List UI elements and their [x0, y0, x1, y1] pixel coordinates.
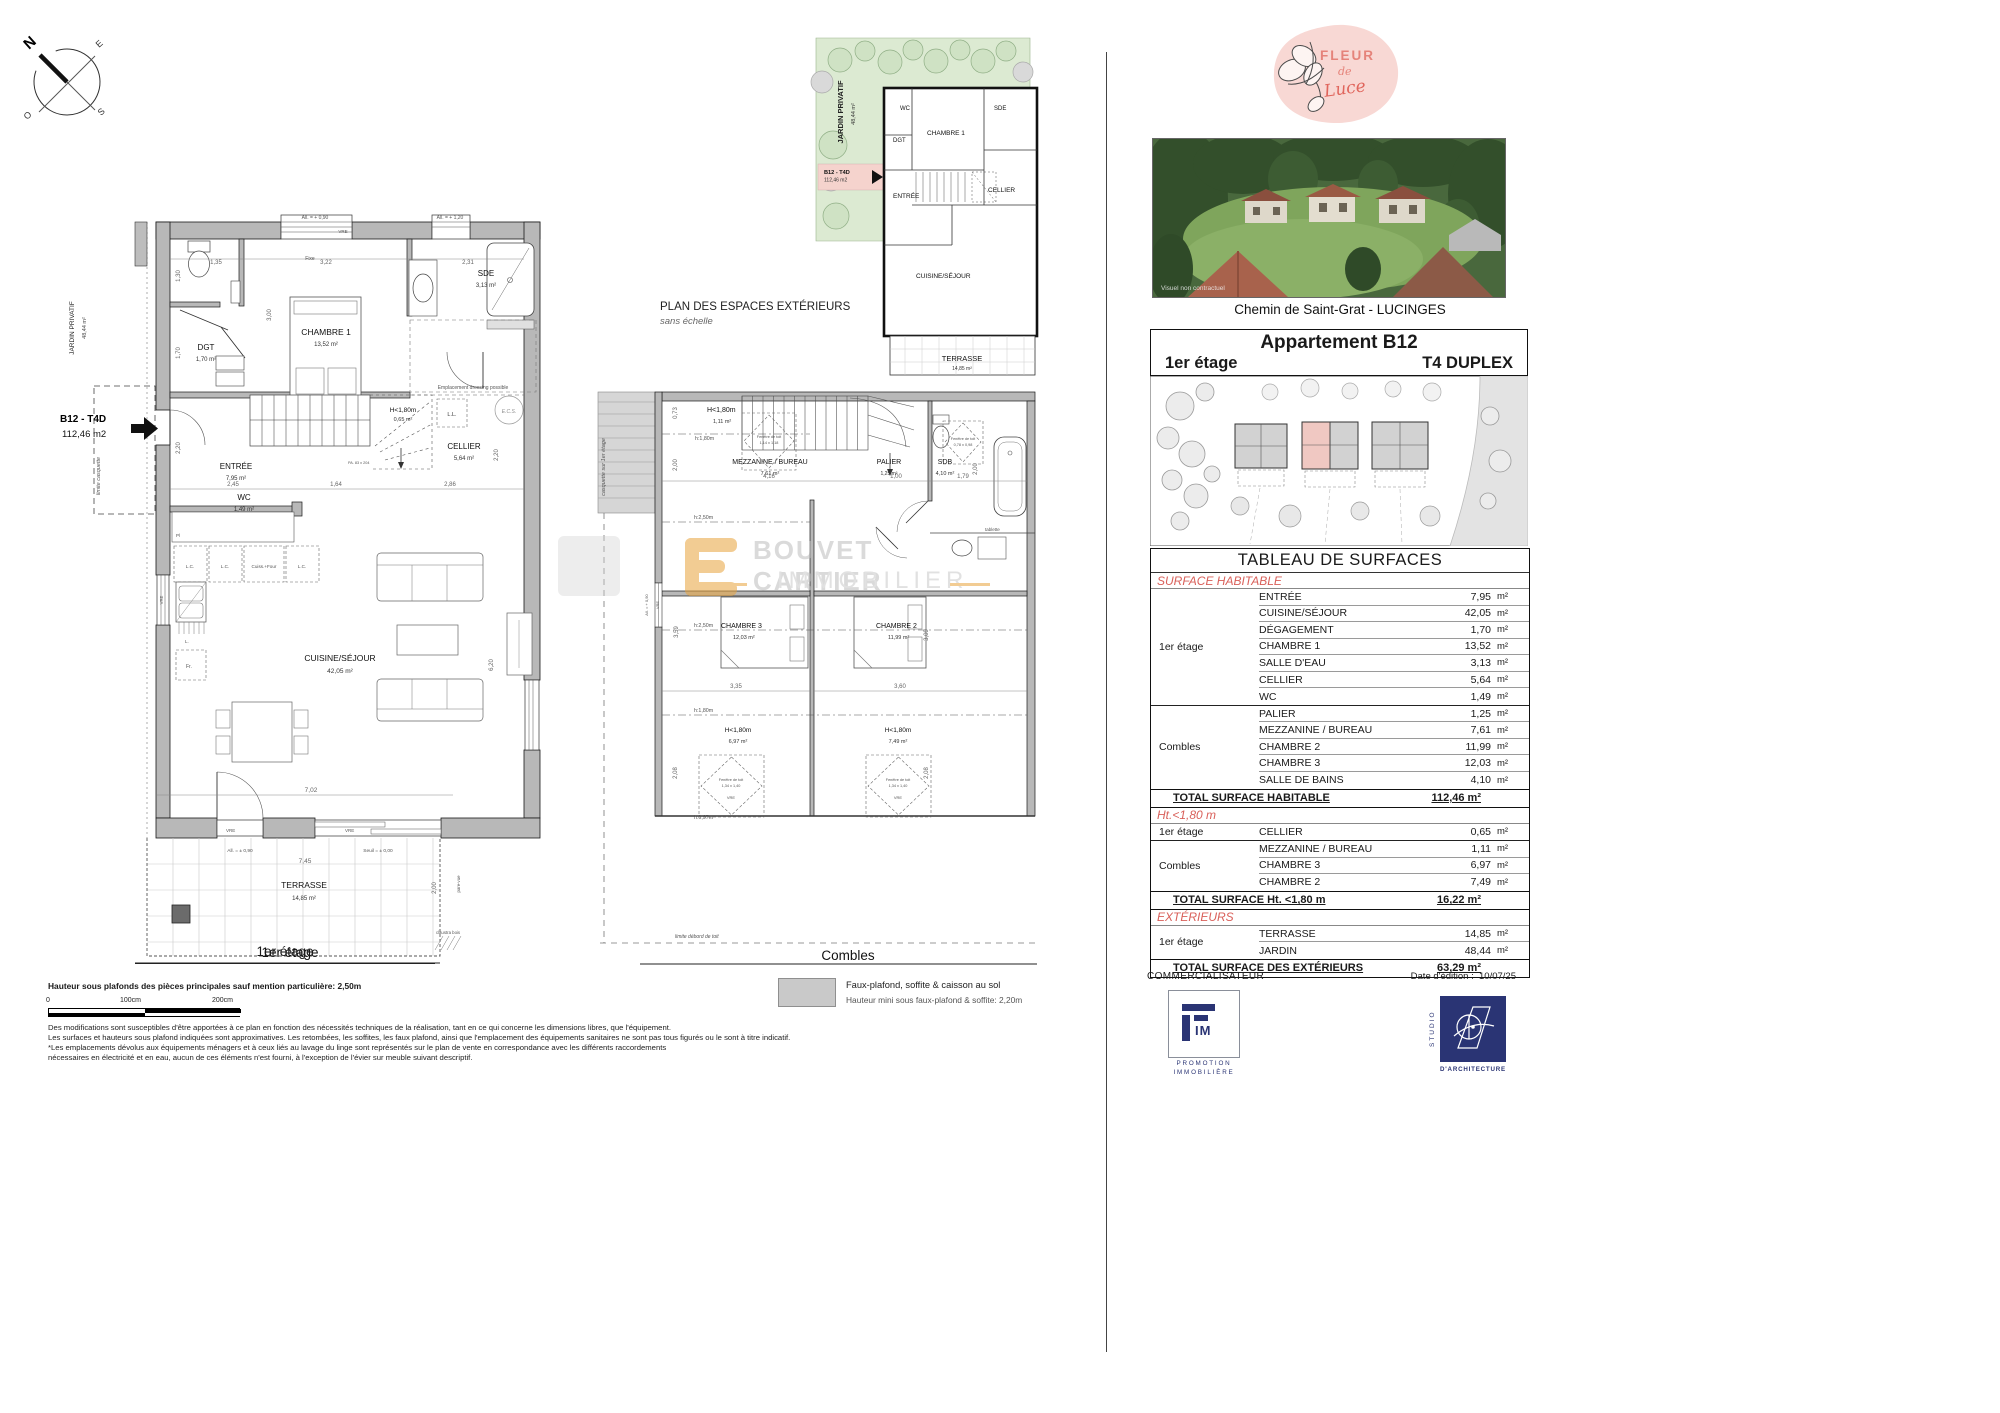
- apartment-floor: 1er étage: [1165, 354, 1237, 373]
- ceiling-height-note: Hauteur sous plafonds des pièces princip…: [48, 981, 361, 991]
- commercialisateur-label: COMMERCIALISATEUR: [1147, 971, 1264, 982]
- ext-terrasse: TERRASSE: [942, 354, 982, 363]
- row-unit: m²: [1491, 591, 1529, 602]
- plan-exterieurs: B12 - T4D 112,46 m2 WC CH: [650, 20, 1045, 385]
- dim: 2,20: [494, 449, 500, 461]
- dim: 6,20: [489, 659, 495, 671]
- disclaimer-line1: Des modifications sont susceptibles d'êt…: [48, 1023, 938, 1033]
- dim: 3,59: [674, 626, 680, 638]
- row-room: WC: [1259, 691, 1415, 703]
- row-room: SALLE D'EAU: [1259, 657, 1415, 669]
- unit-marker-code: B12 - T4D: [60, 414, 106, 425]
- ann-fr: Fr.: [186, 664, 192, 670]
- total-label: TOTAL SURFACE HABITABLE: [1173, 792, 1330, 804]
- panel-divider: [1106, 52, 1107, 1352]
- pc-ft4: Fenêtre de toit: [886, 778, 911, 782]
- table-row: DÉGAGEMENT1,70m²: [1259, 622, 1529, 639]
- ann-door-spec: PA. 83 x 204: [348, 461, 369, 465]
- disclaimer-line3: *Les emplacements dévolus aux équipement…: [48, 1043, 938, 1053]
- dim: 2,00: [432, 882, 438, 894]
- ext-sde: SDE: [994, 106, 1006, 112]
- row-unit: m²: [1491, 725, 1529, 736]
- watermark-rule-left: [695, 583, 747, 586]
- room-cellier: CELLIER: [447, 442, 481, 451]
- row-value: 3,13: [1415, 657, 1491, 669]
- table-row: MEZZANINE / BUREAU1,11m²: [1259, 841, 1529, 858]
- dim: 3,00: [267, 309, 273, 321]
- pc-ft1: Fenêtre de toit: [757, 435, 782, 439]
- site-plan: [1150, 376, 1528, 546]
- fim-logo: IM: [1168, 990, 1240, 1058]
- row-unit: m²: [1491, 708, 1529, 719]
- row-room: TERRASSE: [1259, 928, 1415, 940]
- ext-cuisine: CUISINE/SÉJOUR: [916, 271, 971, 280]
- ann-lc-1: L.C.: [186, 564, 194, 569]
- table-row: CUISINE/SÉJOUR42,05m²: [1259, 606, 1529, 623]
- ann-claustra: claustra bois: [436, 930, 460, 935]
- row-value: 4,10: [1415, 774, 1491, 786]
- dim: 3,22: [320, 260, 332, 266]
- ext-cellier: CELLIER: [988, 187, 1015, 194]
- row-unit: m²: [1491, 945, 1529, 956]
- row-unit: m²: [1491, 877, 1529, 888]
- total-ht180: TOTAL SURFACE Ht. <1,80 m 16,22 m²: [1151, 891, 1529, 910]
- disclaimer-line4: nécessaires en électricité et en eau, au…: [48, 1053, 938, 1063]
- pc-ft2-size: 0,78 x 0,98: [954, 443, 973, 447]
- scale-100: 100cm: [120, 997, 141, 1004]
- apartment-header: Appartement B12 1er étage T4 DUPLEX: [1150, 329, 1528, 376]
- row-room: CHAMBRE 2: [1259, 741, 1415, 753]
- row-value: 1,11: [1415, 843, 1491, 855]
- floor-label: Combles: [1151, 841, 1259, 891]
- unit-marker-area: 112,46 m2: [62, 429, 106, 440]
- row-unit: m²: [1491, 674, 1529, 685]
- row-room: MEZZANINE / BUREAU: [1259, 724, 1415, 736]
- row-unit: m²: [1491, 641, 1529, 652]
- plan-sheet: N E S O: [0, 0, 2000, 1413]
- compass-icon: N E S O: [15, 30, 115, 130]
- pc-low1: H<1,80m: [707, 407, 736, 414]
- compass-o: O: [22, 109, 34, 121]
- row-room: MEZZANINE / BUREAU: [1259, 843, 1415, 855]
- row-unit: m²: [1491, 758, 1529, 769]
- row-unit: m²: [1491, 826, 1529, 837]
- pc-sdb: SDB: [938, 459, 953, 466]
- ext-ch1: CHAMBRE 1: [927, 130, 965, 137]
- room-entree: ENTRÉE: [220, 462, 252, 471]
- ann-seuil: Seuil = ± 0,00: [363, 848, 393, 854]
- room-cuisine-area: 42,05 m²: [327, 668, 353, 675]
- dim: 2,20: [176, 442, 182, 454]
- table-row: CHAMBRE 36,97m²: [1259, 858, 1529, 875]
- pc-ch2-area: 11,99 m²: [888, 635, 909, 641]
- apartment-type: T4 DUPLEX: [1422, 354, 1513, 373]
- pc-h180-2: h:1,80m: [694, 708, 714, 714]
- ann-pl: Pl: [176, 533, 180, 538]
- group-etage-ext: 1er étage TERRASSE14,85m² JARDIN48,44m²: [1151, 926, 1529, 959]
- ann-all120: All. = + 1,20: [437, 215, 464, 221]
- ann-vre-3: VRE: [345, 828, 354, 833]
- scalebar-seg: [49, 1013, 145, 1017]
- pc-ft2: Fenêtre de toit: [951, 437, 976, 441]
- studio-logo: [1440, 996, 1506, 1062]
- scale-0: 0: [46, 997, 50, 1004]
- ext-wc: WC: [900, 106, 911, 112]
- surface-table-title: TABLEAU DE SURFACES: [1151, 549, 1529, 573]
- row-value: 48,44: [1415, 945, 1491, 957]
- scalebar-seg: [145, 1013, 241, 1017]
- dim: 3,60: [894, 684, 906, 690]
- ann-cuiss: Cuiss.+Four: [252, 564, 277, 569]
- fim-logo-text: IM: [1195, 1023, 1211, 1038]
- ann-lc-2: L.C.: [221, 564, 229, 569]
- row-value: 11,99: [1415, 741, 1491, 753]
- ext-plan-subtitle: sans échelle: [660, 316, 713, 327]
- jardin-area: 48,44 m²: [82, 317, 88, 339]
- dim: 7,45: [299, 858, 312, 865]
- row-unit: m²: [1491, 657, 1529, 668]
- room-ch1-area: 13,52 m²: [314, 342, 338, 348]
- studio-logo-subtitle: D'ARCHITECTURE: [1430, 1066, 1516, 1073]
- combles-title: Combles: [821, 948, 875, 963]
- floorplan-1er-etage: WC 1,49 m² DGT 1,70 m² CHAMBRE 1 13,52 m…: [40, 210, 545, 965]
- row-unit: m²: [1491, 624, 1529, 635]
- room-dgt-area: 1,70 m²: [196, 357, 216, 363]
- legend-line1: Faux-plafond, soffite & caisson au sol: [846, 980, 1000, 990]
- ann-all090: All. = + 0,90: [302, 215, 329, 221]
- row-unit: m²: [1491, 741, 1529, 752]
- table-row: CHAMBRE 27,49m²: [1259, 874, 1529, 891]
- row-unit: m²: [1491, 928, 1529, 939]
- pc-h180-1: h:1,80m: [695, 436, 715, 442]
- ext-terrasse-area: 14,85 m²: [952, 366, 972, 372]
- compass-n: N: [20, 33, 39, 53]
- row-value: 7,61: [1415, 724, 1491, 736]
- pc-low1-area: 1,11 m²: [713, 419, 731, 425]
- pc-ft4-size: 1,34 x 1,40: [889, 784, 908, 788]
- floorplan-combles: casquette sur 1er étage: [580, 385, 1050, 965]
- row-value: 12,03: [1415, 757, 1491, 769]
- table-row: CHAMBRE 312,03m²: [1259, 755, 1529, 772]
- compass-e: E: [94, 38, 105, 49]
- pc-low2-area: 7,49 m²: [889, 739, 908, 745]
- dim: 3,35: [730, 684, 742, 690]
- low-height-label: H<1,80m: [390, 407, 417, 414]
- floor-label: 1er étage: [1151, 824, 1259, 841]
- studio-logo-vertical-text: STUDIO: [1429, 996, 1438, 1062]
- floor-label: 1er étage: [1151, 589, 1259, 705]
- pc-ft1-size: 1,14 x 1,18: [760, 441, 779, 445]
- group-combles-habitable: Combles PALIER1,25m² MEZZANINE / BUREAU7…: [1151, 705, 1529, 789]
- dim: 1,30: [176, 270, 182, 282]
- row-value: 7,95: [1415, 591, 1491, 603]
- table-row: CELLIER0,65m²: [1259, 824, 1529, 841]
- brand-logo: FLEUR de Luce: [1258, 22, 1408, 126]
- fim-logo-bar: [1182, 1015, 1190, 1041]
- row-value: 1,70: [1415, 624, 1491, 636]
- fim-sub-line2: IMMOBILIÈRE: [1163, 1069, 1245, 1078]
- room-sde: SDE: [478, 269, 494, 278]
- jardin-label: JARDIN PRIVATIF: [69, 301, 76, 355]
- floor-label: 1er étage: [1151, 926, 1259, 959]
- plan1-caption: 1er étage: [135, 944, 435, 964]
- section-exterieurs: EXTÉRIEURS: [1151, 910, 1529, 926]
- row-value: 7,49: [1415, 876, 1491, 888]
- brand-word-2: de: [1338, 65, 1352, 78]
- table-row: PALIER1,25m²: [1259, 706, 1529, 723]
- photo-caption: Visuel non contractuel: [1161, 285, 1225, 292]
- row-room: CELLIER: [1259, 826, 1415, 838]
- fim-logo-subtitle: PROMOTION IMMOBILIÈRE: [1163, 1060, 1245, 1077]
- row-room: CHAMBRE 3: [1259, 757, 1415, 769]
- ann-vre-4: VRE: [159, 595, 164, 604]
- ann-ll: L.L.: [447, 412, 457, 418]
- dim: 2,31: [462, 260, 474, 266]
- total-value: 112,46 m²: [1431, 792, 1481, 804]
- legend-line2: Hauteur mini sous faux-plafond & soffite…: [846, 995, 1022, 1005]
- group-etage-habitable: 1er étage ENTRÉE7,95m² CUISINE/SÉJOUR42,…: [1151, 589, 1529, 705]
- total-label: TOTAL SURFACE Ht. <1,80 m: [1173, 894, 1326, 906]
- dim: 4,16: [763, 474, 775, 480]
- fim-sub-line1: PROMOTION: [1163, 1060, 1245, 1069]
- fim-logo-bar: [1182, 1004, 1215, 1011]
- edition-date-value: 10/07/25: [1479, 971, 1516, 982]
- pc-ft3: Fenêtre de toit: [719, 778, 744, 782]
- pc-h097: h:0,97m: [694, 815, 714, 821]
- row-unit: m²: [1491, 860, 1529, 871]
- ext-marker-area: 112,46 m2: [824, 178, 847, 184]
- row-value: 5,64: [1415, 674, 1491, 686]
- dim: 1,64: [330, 482, 342, 488]
- ann-dressing: Emplacement dressing possible: [438, 385, 509, 391]
- dim: 1,79: [957, 474, 969, 480]
- pc-sdb-area: 4,10 m²: [936, 471, 955, 477]
- watermark-logo-bg: [558, 536, 620, 596]
- fim-logo-bar: [1194, 1015, 1208, 1021]
- dim: 2,08: [673, 767, 679, 779]
- table-row: TERRASSE14,85m²: [1259, 926, 1529, 943]
- low-height-area: 0,65 m²: [394, 417, 413, 423]
- pc-ch3-area: 12,03 m²: [733, 635, 755, 641]
- dim: 2,86: [444, 482, 456, 488]
- limite-debord: limite débord de toit: [675, 934, 719, 940]
- edition-date: Date d'édition : 10/07/25: [1340, 971, 1516, 982]
- row-room: SALLE DE BAINS: [1259, 774, 1415, 786]
- table-row: CHAMBRE 211,99m²: [1259, 739, 1529, 756]
- dim: 2,45: [227, 482, 239, 488]
- scalebar-labels: 0 100cm 200cm: [44, 997, 264, 1006]
- row-room: DÉGAGEMENT: [1259, 624, 1415, 636]
- row-value: 0,65: [1415, 826, 1491, 838]
- project-photo: Visuel non contractuel: [1152, 138, 1506, 298]
- watermark: BOUVET CARTIER IMMOBILIER: [545, 533, 965, 605]
- row-value: 1,49: [1415, 691, 1491, 703]
- ann-parevue: pare-vue: [456, 875, 461, 893]
- edition-date-label: Date d'édition :: [1411, 971, 1474, 982]
- watermark-rule-right: [950, 583, 990, 586]
- row-unit: m²: [1491, 843, 1529, 854]
- table-row: CELLIER5,64m²: [1259, 672, 1529, 689]
- pc-low2: H<1,80m: [885, 727, 912, 734]
- table-row: MEZZANINE / BUREAU7,61m²: [1259, 722, 1529, 739]
- ext-jardin-area: 48,44 m²: [851, 103, 857, 125]
- group-etage-ht: 1er étage CELLIER0,65m²: [1151, 824, 1529, 841]
- pc-ft4-vre: VRE: [894, 795, 903, 800]
- dim: 1,35: [210, 260, 222, 266]
- ann-allpm090: All. = ± 0,90: [227, 848, 253, 854]
- watermark-logo-icon: [685, 538, 741, 598]
- row-value: 6,97: [1415, 859, 1491, 871]
- table-row: JARDIN48,44m²: [1259, 942, 1529, 959]
- project-address: Chemin de Saint-Grat - LUCINGES: [1150, 302, 1530, 317]
- scale-200: 200cm: [212, 997, 233, 1004]
- dim: 3,09: [924, 629, 930, 641]
- row-room: CHAMBRE 2: [1259, 876, 1415, 888]
- row-room: CUISINE/SÉJOUR: [1259, 607, 1415, 619]
- pc-ft3-vre: VRE: [727, 795, 736, 800]
- floor-label: Combles: [1151, 706, 1259, 789]
- row-value: 1,25: [1415, 708, 1491, 720]
- pc-palier: PALIER: [877, 459, 901, 466]
- ext-dgt: DGT: [893, 138, 906, 144]
- row-value: 42,05: [1415, 607, 1491, 619]
- dim: 1,70: [176, 347, 182, 359]
- row-room: PALIER: [1259, 708, 1415, 720]
- row-room: CHAMBRE 1: [1259, 640, 1415, 652]
- ext-jardin: JARDIN PRIVATIF: [836, 80, 845, 143]
- ann-l: L.: [185, 639, 189, 644]
- pc-ch3: CHAMBRE 3: [721, 623, 762, 630]
- row-room: CHAMBRE 3: [1259, 859, 1415, 871]
- group-combles-ht: Combles MEZZANINE / BUREAU1,11m² CHAMBRE…: [1151, 840, 1529, 891]
- legend-swatch: [778, 978, 836, 1007]
- row-room: CELLIER: [1259, 674, 1415, 686]
- pc-ch2: CHAMBRE 2: [876, 623, 917, 630]
- surface-table: TABLEAU DE SURFACES SURFACE HABITABLE 1e…: [1150, 548, 1530, 978]
- ext-entree: ENTRÉE: [893, 191, 920, 200]
- room-cellier-area: 5,64 m²: [454, 456, 474, 462]
- ann-lc-3: L.C.: [298, 564, 306, 569]
- ann-fixe: Fixe: [305, 256, 315, 262]
- ann-vre-1: VRE: [338, 229, 347, 234]
- studio-logo-icon: [1440, 996, 1506, 1062]
- dim: 1,00: [890, 474, 902, 480]
- disclaimer-line2: Les surfaces et hauteurs sous plafond in…: [48, 1033, 938, 1043]
- casquette-label: casquette sur 1er étage: [601, 438, 607, 496]
- pc-ft3-size: 1,34 x 1,40: [722, 784, 741, 788]
- ann-vre-2: VRE: [226, 828, 235, 833]
- table-row: CHAMBRE 113,52m²: [1259, 639, 1529, 656]
- room-ch1: CHAMBRE 1: [301, 327, 351, 337]
- room-cuisine: CUISINE/SÉJOUR: [304, 653, 375, 663]
- dim: 2,00: [973, 463, 979, 475]
- ext-marker-code: B12 - T4D: [824, 170, 850, 176]
- dim: 7,02: [305, 787, 318, 794]
- flower-icon: [1258, 22, 1408, 126]
- row-unit: m²: [1491, 775, 1529, 786]
- table-row: SALLE D'EAU3,13m²: [1259, 655, 1529, 672]
- dim: 0,73: [673, 407, 679, 419]
- pc-low3-area: 6,97 m²: [729, 739, 748, 745]
- limite-casquette: limite casquette: [96, 457, 102, 495]
- room-sde-area: 3,13 m²: [476, 283, 496, 289]
- ann-ecs: E.C.S.: [502, 409, 516, 415]
- row-room: ENTRÉE: [1259, 591, 1415, 603]
- table-row: SALLE DE BAINS4,10m²: [1259, 772, 1529, 789]
- pc-h250-2: h:2,50m: [694, 623, 714, 629]
- total-value: 16,22 m²: [1437, 894, 1481, 906]
- compass-s: S: [96, 106, 107, 117]
- row-unit: m²: [1491, 608, 1529, 619]
- room-dgt: DGT: [198, 343, 215, 352]
- pc-h250-1: h:2,50m: [694, 515, 714, 521]
- brand-word-1: FLEUR: [1320, 48, 1375, 63]
- row-value: 14,85: [1415, 928, 1491, 940]
- room-terrasse: TERRASSE: [281, 880, 327, 890]
- row-unit: m²: [1491, 691, 1529, 702]
- row-room: JARDIN: [1259, 945, 1415, 957]
- watermark-line2: IMMOBILIER: [777, 567, 968, 595]
- dim: 2,08: [924, 767, 930, 779]
- pc-mez: MEZZANINE / BUREAU: [732, 459, 807, 466]
- section-ht180: Ht.<1,80 m: [1151, 808, 1529, 824]
- section-habitable: SURFACE HABITABLE: [1151, 573, 1529, 589]
- pc-tablette: tablette: [985, 527, 1000, 532]
- room-wc-area: 1,49 m²: [234, 507, 254, 513]
- table-row: ENTRÉE7,95m²: [1259, 589, 1529, 606]
- total-habitable: TOTAL SURFACE HABITABLE 112,46 m²: [1151, 789, 1529, 808]
- table-row: WC1,49m²: [1259, 688, 1529, 705]
- scalebar: [48, 1008, 240, 1017]
- dim: 2,00: [673, 459, 679, 471]
- row-value: 13,52: [1415, 640, 1491, 652]
- apartment-title: Appartement B12: [1151, 332, 1527, 354]
- ext-plan-title: PLAN DES ESPACES EXTÉRIEURS: [660, 300, 851, 313]
- room-terrasse-area: 14,85 m²: [292, 896, 316, 902]
- pc-low3: H<1,80m: [725, 727, 752, 734]
- room-wc: WC: [237, 493, 251, 502]
